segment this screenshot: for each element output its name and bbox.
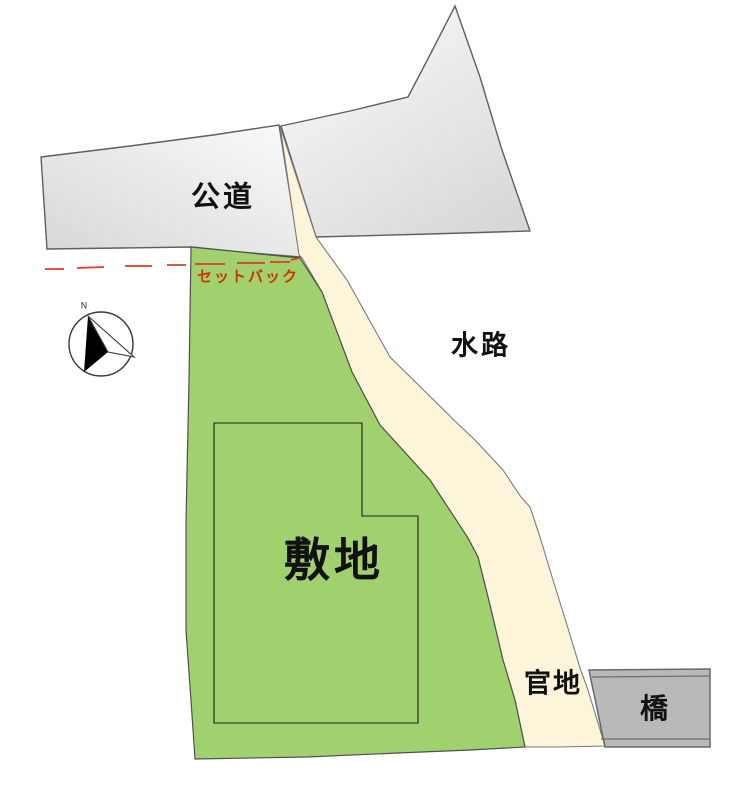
label-compass-north: N — [81, 303, 88, 312]
label-government-land: 官地 — [524, 671, 582, 698]
compass-north-icon — [69, 312, 134, 376]
label-setback: セットバック — [197, 270, 299, 285]
site-plan-drawing — [0, 0, 753, 800]
label-site-lot: 敷地 — [284, 537, 384, 583]
label-waterway: 水路 — [451, 333, 511, 360]
public-road-area-right — [281, 6, 530, 237]
label-bridge: 橋 — [640, 695, 668, 723]
public-road-area-left — [41, 125, 300, 257]
label-public-road: 公道 — [191, 183, 255, 212]
site-plan-canvas: 公道 水路 敷地 官地 橋 セットバック N — [0, 0, 753, 800]
